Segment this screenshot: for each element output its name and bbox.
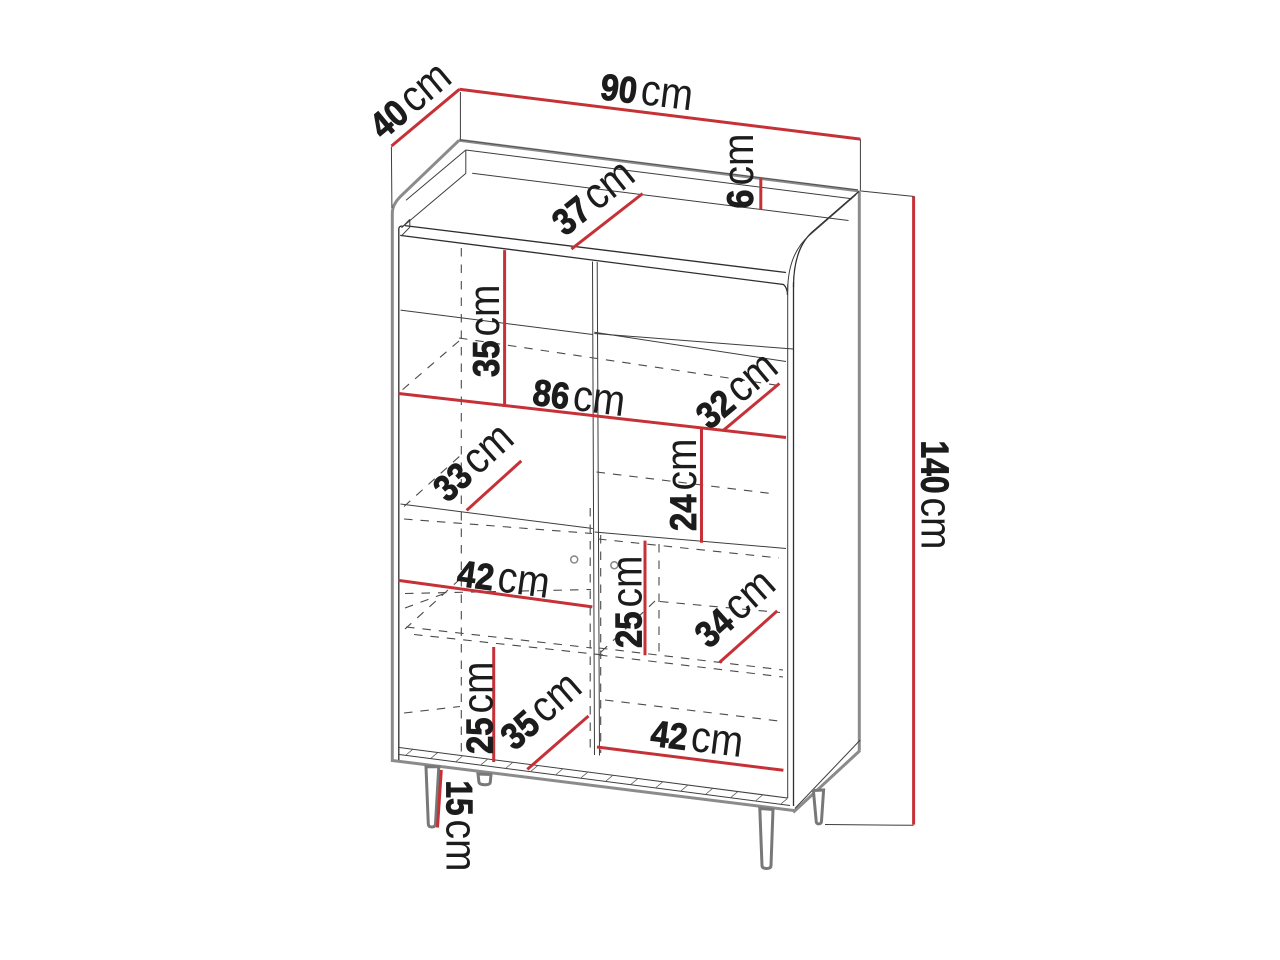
svg-text:cm: cm <box>460 285 509 337</box>
svg-text:cm: cm <box>603 556 652 608</box>
svg-text:cm: cm <box>657 439 706 491</box>
svg-text:25: 25 <box>460 718 501 755</box>
svg-text:140: 140 <box>913 441 956 494</box>
svg-text:cm: cm <box>688 712 746 767</box>
svg-text:15: 15 <box>439 781 480 816</box>
svg-text:25: 25 <box>609 612 650 649</box>
svg-text:42: 42 <box>455 553 497 599</box>
svg-text:90: 90 <box>598 66 639 111</box>
svg-text:86: 86 <box>530 372 571 417</box>
svg-text:cm: cm <box>570 371 628 426</box>
svg-text:cm: cm <box>638 65 696 120</box>
svg-text:cm: cm <box>437 820 486 872</box>
svg-text:cm: cm <box>495 552 553 608</box>
svg-text:24: 24 <box>663 494 704 531</box>
svg-text:cm: cm <box>454 662 503 714</box>
svg-text:42: 42 <box>648 713 689 758</box>
svg-text:35: 35 <box>466 341 507 378</box>
svg-text:cm: cm <box>714 134 763 186</box>
svg-text:cm: cm <box>912 498 961 550</box>
svg-text:6: 6 <box>720 190 761 209</box>
